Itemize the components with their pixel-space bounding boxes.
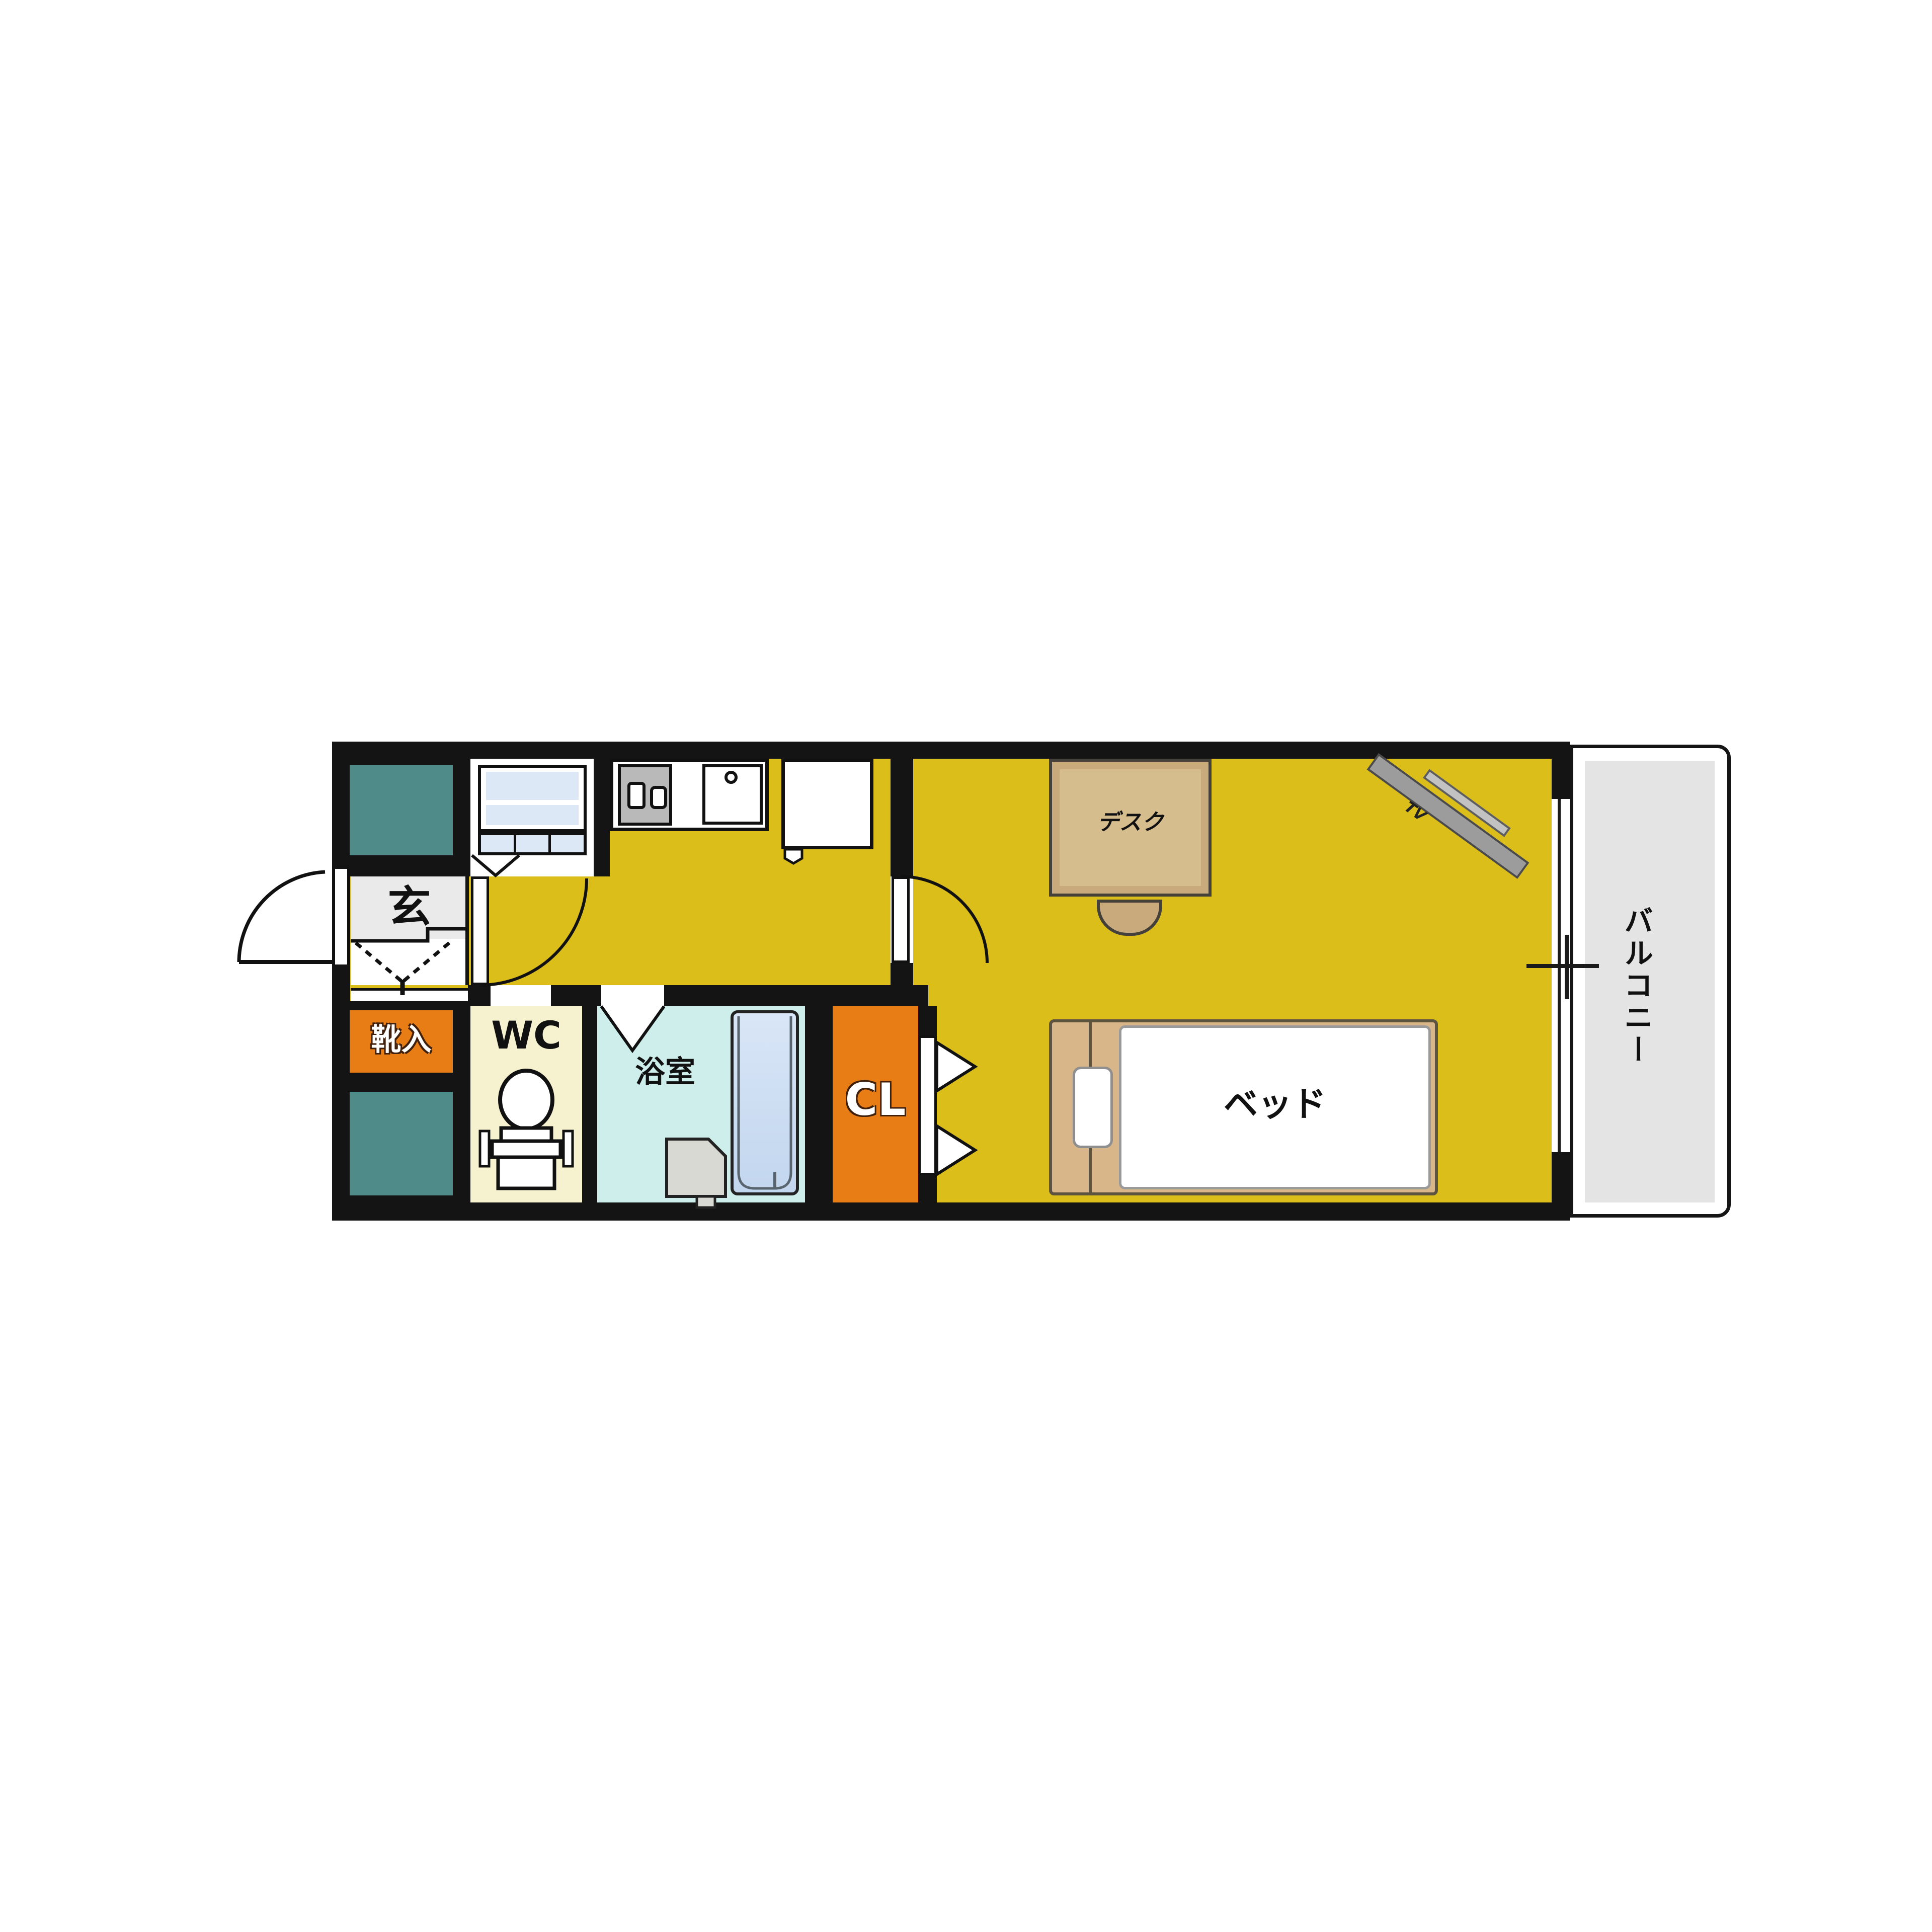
wall-kitchen-main-stub — [891, 963, 913, 1006]
wall-right-upper — [1552, 742, 1570, 799]
closet-label: CL — [833, 1077, 918, 1123]
bathroom-label: 浴室 — [597, 1057, 733, 1088]
balcony-label: バルコニー — [1616, 845, 1651, 1127]
washer-control-cell — [551, 835, 584, 852]
stove-burner-right — [650, 786, 667, 809]
window-cross-vertical — [1565, 935, 1569, 999]
wall-bottom — [332, 1202, 1570, 1221]
entrance-door-opening — [332, 869, 350, 964]
balcony-window-glass-line — [1558, 799, 1561, 1152]
bed-label: ベッド — [1144, 1087, 1406, 1122]
washing-machine-controls — [478, 832, 587, 855]
entrance-label: 玄 — [351, 884, 468, 930]
wall-entrance-inner-line — [465, 876, 469, 985]
wall-wc-bath — [582, 1006, 597, 1202]
refrigerator-space — [781, 759, 873, 849]
closet-door-stub-top — [918, 1006, 937, 1035]
shoe-cabinet-label: 靴入 — [350, 1024, 453, 1056]
desk-label: デスク — [1060, 811, 1201, 834]
wall-washer-right — [594, 742, 610, 876]
toilet-label: WC — [470, 1015, 582, 1056]
washer-control-cell — [481, 835, 516, 852]
wall-kitchen-main-upper — [891, 759, 913, 876]
washing-machine-panel — [486, 805, 579, 825]
wc-door-opening — [491, 985, 551, 1006]
entrance-tataki — [351, 939, 468, 985]
wall-genkan-bottom-line — [332, 1001, 468, 1006]
bath-door-opening — [601, 985, 664, 1006]
closet-folding-door — [918, 1035, 937, 1175]
bed-pillow — [1073, 1067, 1113, 1148]
wall-right-lower — [1552, 1152, 1570, 1221]
window-cross-horizontal — [1526, 964, 1599, 968]
washing-machine-lid — [486, 772, 579, 800]
stove-burner-left — [627, 782, 646, 809]
wall-hall-row-c — [664, 985, 928, 1006]
pipe-space-upper — [350, 765, 453, 855]
room-door-leaf — [892, 876, 910, 963]
pipe-space-lower — [350, 1092, 453, 1195]
wall-bath-closet — [805, 1006, 833, 1202]
floor-plan-canvas: バルコニー 玄 靴入 WC 浴室 — [0, 0, 1932, 1932]
kitchen-door-leaf — [471, 876, 489, 985]
wall-top — [332, 742, 1570, 759]
entrance-door-arc — [239, 872, 325, 962]
sink-faucet — [725, 771, 738, 784]
wall-hall-row-a — [468, 985, 491, 1006]
wall-hall-row-b — [551, 985, 601, 1006]
washer-control-cell — [516, 835, 551, 852]
closet-door-stub-bottom — [918, 1175, 937, 1202]
bathtub — [731, 1010, 799, 1195]
